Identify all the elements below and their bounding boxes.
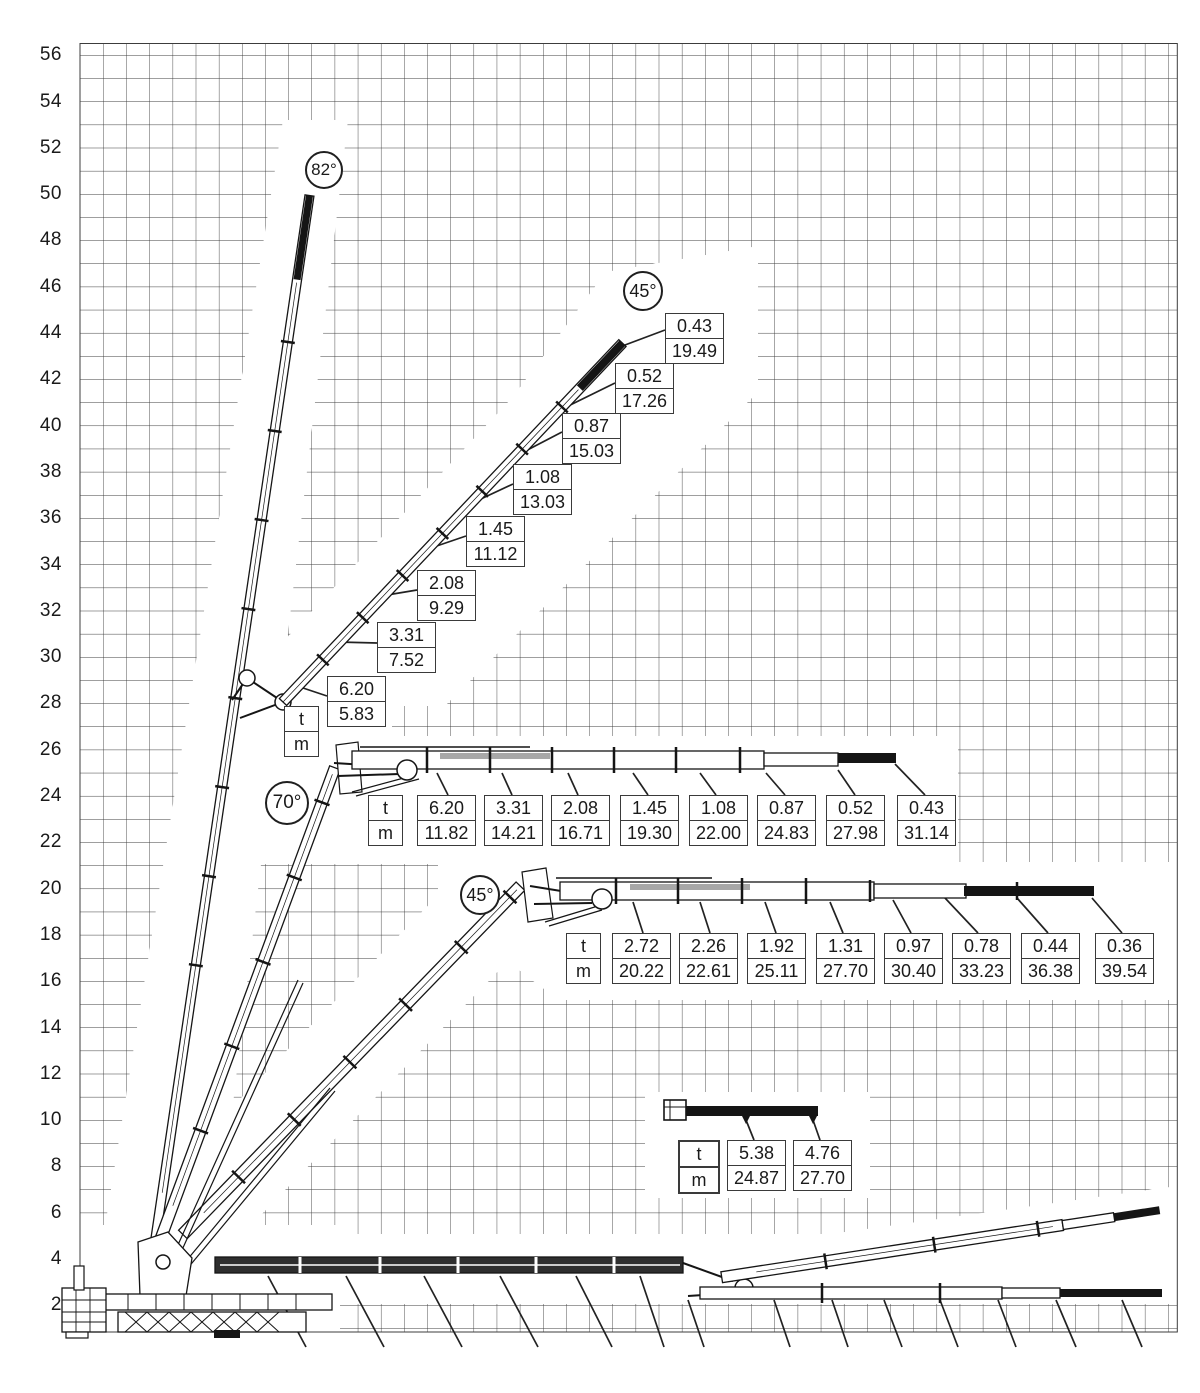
reach-metres: 22.61 bbox=[680, 958, 737, 983]
axis-label: 24 bbox=[20, 785, 62, 807]
load-point-label: 3.31 7.52 bbox=[377, 622, 436, 673]
unit-metres: m bbox=[567, 958, 600, 983]
reach-metres: 24.83 bbox=[758, 820, 815, 845]
axis-label: 16 bbox=[20, 970, 62, 992]
axis-label: 36 bbox=[20, 507, 62, 529]
reach-metres: 13.03 bbox=[514, 489, 571, 514]
ground-boom bbox=[215, 1257, 683, 1273]
load-point-label: 2.08 9.29 bbox=[417, 570, 476, 621]
units-legend: t m bbox=[284, 706, 319, 757]
reach-metres: 5.83 bbox=[328, 701, 385, 726]
load-tonnes: 3.31 bbox=[485, 796, 542, 820]
load-point-label: 4.76 27.70 bbox=[793, 1140, 852, 1191]
load-point-label: 1.08 22.00 bbox=[689, 795, 748, 846]
load-point-label: 0.52 27.98 bbox=[826, 795, 885, 846]
axis-label: 2 bbox=[20, 1294, 62, 1316]
reach-metres: 19.30 bbox=[621, 820, 678, 845]
axis-label: 44 bbox=[20, 322, 62, 344]
load-tonnes: 0.52 bbox=[616, 364, 673, 388]
load-point-label: 0.52 17.26 bbox=[615, 363, 674, 414]
load-tonnes: 1.92 bbox=[748, 934, 805, 958]
load-tonnes: 0.44 bbox=[1022, 934, 1079, 958]
load-point-label: 1.92 25.11 bbox=[747, 933, 806, 984]
load-point-label: 5.38 24.87 bbox=[727, 1140, 786, 1191]
angle-badge-45-lower: 45° bbox=[460, 875, 500, 915]
reach-metres: 24.87 bbox=[728, 1165, 785, 1190]
angle-badge-45-upper: 45° bbox=[623, 271, 663, 311]
load-point-label: 0.87 15.03 bbox=[562, 413, 621, 464]
load-tonnes: 6.20 bbox=[418, 796, 475, 820]
reach-metres: 25.11 bbox=[748, 958, 805, 983]
load-point-label: 1.08 13.03 bbox=[513, 464, 572, 515]
load-point-label: 3.31 14.21 bbox=[484, 795, 543, 846]
reach-metres: 11.12 bbox=[467, 541, 524, 566]
reach-metres: 11.82 bbox=[418, 820, 475, 845]
reach-metres: 7.52 bbox=[378, 647, 435, 672]
reach-metres: 30.40 bbox=[885, 958, 942, 983]
unit-metres: m bbox=[285, 731, 318, 756]
load-point-label: 1.45 19.30 bbox=[620, 795, 679, 846]
load-point-label: 6.20 11.82 bbox=[417, 795, 476, 846]
angle-badge-70: 70° bbox=[265, 781, 309, 825]
axis-label: 12 bbox=[20, 1063, 62, 1085]
axis-label: 22 bbox=[20, 831, 62, 853]
axis-label: 52 bbox=[20, 137, 62, 159]
axis-label: 30 bbox=[20, 646, 62, 668]
reach-metres: 19.49 bbox=[666, 338, 723, 363]
reach-metres: 27.70 bbox=[794, 1165, 851, 1190]
units-legend: t m bbox=[368, 795, 403, 846]
units-legend: t m bbox=[678, 1140, 720, 1194]
load-tonnes: 5.38 bbox=[728, 1141, 785, 1165]
angle-badge-82: 82° bbox=[305, 151, 343, 189]
load-tonnes: 1.08 bbox=[690, 796, 747, 820]
load-tonnes: 1.31 bbox=[817, 934, 874, 958]
axis-label: 20 bbox=[20, 878, 62, 900]
load-point-label: 1.45 11.12 bbox=[466, 516, 525, 567]
reach-metres: 27.98 bbox=[827, 820, 884, 845]
reach-metres: 17.26 bbox=[616, 388, 673, 413]
load-point-label: 0.43 31.14 bbox=[897, 795, 956, 846]
reach-metres: 16.71 bbox=[552, 820, 609, 845]
reach-metres: 20.22 bbox=[613, 958, 670, 983]
axis-label: 46 bbox=[20, 276, 62, 298]
axis-label: 32 bbox=[20, 600, 62, 622]
load-point-label: 0.44 36.38 bbox=[1021, 933, 1080, 984]
axis-label: 26 bbox=[20, 739, 62, 761]
unit-tonnes: t bbox=[369, 796, 402, 820]
load-point-label: 2.72 20.22 bbox=[612, 933, 671, 984]
load-tonnes: 4.76 bbox=[794, 1141, 851, 1165]
load-tonnes: 3.31 bbox=[378, 623, 435, 647]
reach-metres: 15.03 bbox=[563, 438, 620, 463]
load-point-label: 0.87 24.83 bbox=[757, 795, 816, 846]
load-tonnes: 6.20 bbox=[328, 677, 385, 701]
axis-label: 6 bbox=[20, 1202, 62, 1224]
units-legend: t m bbox=[566, 933, 601, 984]
reach-metres: 39.54 bbox=[1096, 958, 1153, 983]
axis-label: 42 bbox=[20, 368, 62, 390]
load-tonnes: 1.08 bbox=[514, 465, 571, 489]
load-tonnes: 0.43 bbox=[898, 796, 955, 820]
load-point-label: 6.20 5.83 bbox=[327, 676, 386, 727]
axis-label: 54 bbox=[20, 91, 62, 113]
axis-label: 56 bbox=[20, 44, 62, 66]
reach-metres: 22.00 bbox=[690, 820, 747, 845]
reach-metres: 33.23 bbox=[953, 958, 1010, 983]
load-tonnes: 2.08 bbox=[552, 796, 609, 820]
load-tonnes: 0.52 bbox=[827, 796, 884, 820]
load-point-label: 2.08 16.71 bbox=[551, 795, 610, 846]
load-point-label: 0.97 30.40 bbox=[884, 933, 943, 984]
unit-tonnes: t bbox=[567, 934, 600, 958]
crane-load-range-diagram: 56 54 52 50 48 46 44 42 40 38 36 34 32 3… bbox=[0, 0, 1200, 1393]
axis-label: 40 bbox=[20, 415, 62, 437]
load-tonnes: 0.36 bbox=[1096, 934, 1153, 958]
reach-metres: 31.14 bbox=[898, 820, 955, 845]
load-point-label: 0.78 33.23 bbox=[952, 933, 1011, 984]
load-point-label: 1.31 27.70 bbox=[816, 933, 875, 984]
load-tonnes: 1.45 bbox=[621, 796, 678, 820]
load-tonnes: 0.43 bbox=[666, 314, 723, 338]
axis-label: 14 bbox=[20, 1017, 62, 1039]
load-tonnes: 2.72 bbox=[613, 934, 670, 958]
unit-metres: m bbox=[369, 820, 402, 845]
load-tonnes: 0.78 bbox=[953, 934, 1010, 958]
reach-metres: 36.38 bbox=[1022, 958, 1079, 983]
axis-label: 4 bbox=[20, 1248, 62, 1270]
axis-label: 48 bbox=[20, 229, 62, 251]
load-tonnes: 2.26 bbox=[680, 934, 737, 958]
axis-label: 38 bbox=[20, 461, 62, 483]
diagram-artwork bbox=[0, 0, 1200, 1393]
load-point-label: 0.43 19.49 bbox=[665, 313, 724, 364]
reach-metres: 14.21 bbox=[485, 820, 542, 845]
reach-metres: 27.70 bbox=[817, 958, 874, 983]
unit-tonnes: t bbox=[285, 707, 318, 731]
axis-label: 18 bbox=[20, 924, 62, 946]
axis-label: 50 bbox=[20, 183, 62, 205]
unit-tonnes: t bbox=[680, 1142, 718, 1166]
load-tonnes: 2.08 bbox=[418, 571, 475, 595]
load-tonnes: 1.45 bbox=[467, 517, 524, 541]
load-tonnes: 0.97 bbox=[885, 934, 942, 958]
load-tonnes: 0.87 bbox=[758, 796, 815, 820]
load-point-label: 2.26 22.61 bbox=[679, 933, 738, 984]
axis-label: 8 bbox=[20, 1155, 62, 1177]
unit-metres: m bbox=[680, 1166, 718, 1192]
load-point-label: 0.36 39.54 bbox=[1095, 933, 1154, 984]
load-tonnes: 0.87 bbox=[563, 414, 620, 438]
axis-label: 10 bbox=[20, 1109, 62, 1131]
reach-metres: 9.29 bbox=[418, 595, 475, 620]
axis-label: 34 bbox=[20, 554, 62, 576]
axis-label: 28 bbox=[20, 692, 62, 714]
